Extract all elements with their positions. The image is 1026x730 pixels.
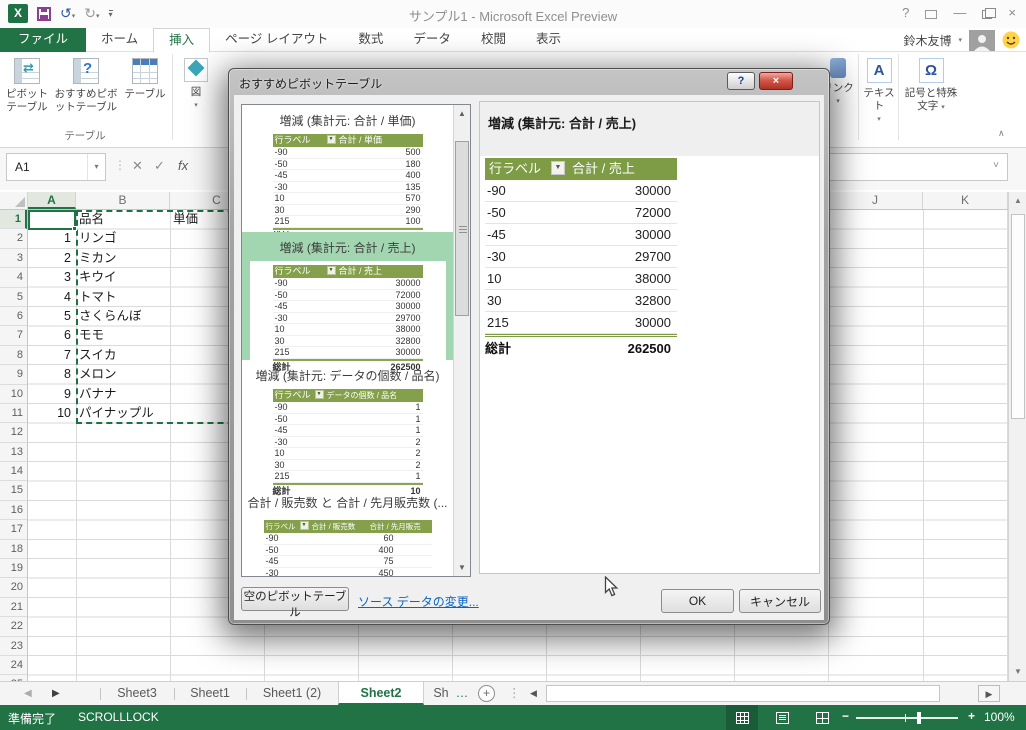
column-header-a[interactable]: A (28, 192, 76, 209)
mini-pivot-row: 102 (273, 448, 423, 460)
row-header[interactable]: 20 (0, 578, 27, 597)
filter-dropdown-icon: ▼ (300, 521, 309, 530)
preview-header-label: 行ラベル (485, 158, 551, 180)
total-value: 262500 (628, 337, 677, 358)
mini-header-value: 合計 / 販売数 (310, 520, 368, 533)
preview-pivot-header: 行ラベル ▼ 合計 / 売上 (485, 158, 677, 180)
row-label: 30 (485, 290, 501, 311)
list-scroll-thumb[interactable] (455, 141, 469, 316)
row-value: 32800 (635, 290, 677, 311)
expand-formula-bar-icon[interactable]: ˅ (993, 160, 999, 171)
row-value: 30000 (395, 347, 422, 358)
text-icon: A (867, 58, 892, 83)
sheet-tab-truncated[interactable]: Sh (428, 682, 454, 705)
list-item-title: 増減 (集計元: 合計 / 単価) (242, 105, 453, 129)
illustrations-icon (184, 58, 208, 82)
row-header[interactable]: 21 (0, 598, 27, 617)
list-item-pivot-1[interactable]: 増減 (集計元: 合計 / 単価) 行ラベル ▼ 合計 / 単価 -90500-… (242, 105, 453, 232)
group-separator (898, 54, 899, 140)
mini-pivot-row: -9060 (264, 533, 432, 545)
list-item-pivot-2-selected[interactable]: 増減 (集計元: 合計 / 売上) 行ラベル ▼ 合計 / 売上 (242, 232, 453, 360)
hscroll-right-icon[interactable]: ▶ (978, 685, 1000, 702)
mini-pivot-row: -45400 (273, 170, 423, 182)
mini-header-label: 行ラベル (273, 265, 325, 278)
mini-pivot-row: 1038000 (273, 324, 423, 336)
name-box-value: A1 (15, 160, 30, 174)
formula-bar-splitter[interactable]: ⋮ (114, 158, 126, 172)
mini-pivot-row: 2151 (273, 471, 423, 483)
row-header[interactable]: 11 (0, 404, 27, 423)
row-header[interactable]: 19 (0, 559, 27, 578)
illustrations-button[interactable]: 図 ▾ (178, 56, 214, 112)
link-icon (830, 58, 846, 78)
mini-header-label: 行ラベル (273, 389, 313, 402)
enter-entry-icon[interactable]: ✓ (154, 158, 165, 174)
feedback-smiley-icon[interactable] (1002, 31, 1020, 49)
pivot-table-icon: ⇄ (14, 58, 40, 84)
pivot-preview-pane: 増減 (集計元: 合計 / 売上) 行ラベル ▼ 合計 / 売上 -903000… (479, 101, 820, 574)
mini-pivot-row: 10570 (273, 193, 423, 205)
text-button[interactable]: A テキスト ▾ (860, 56, 898, 126)
row-header[interactable]: 24 (0, 656, 27, 675)
restore-icon[interactable] (982, 10, 992, 19)
row-value: 29700 (395, 313, 422, 324)
new-sheet-icon[interactable]: + (478, 685, 495, 702)
row-header[interactable]: 6 (0, 307, 27, 326)
recommended-pivot-icon: ? (73, 58, 99, 84)
row-label: -30 (485, 246, 506, 267)
vertical-scrollbar[interactable]: ▲ ▼ (1008, 192, 1026, 681)
table-label: テーブル (124, 88, 165, 100)
list-item-pivot-3[interactable]: 増減 (集計元: データの個数 / 品名) 行ラベル ▼ データの個数 / 品名… (242, 360, 453, 487)
mini-pivot-rows: -901-501-451-3021023022151 (273, 402, 423, 483)
cell-a[interactable]: 9 (28, 385, 76, 404)
mini-pivot-header: 行ラベル ▼ 合計 / 販売数 合計 / 先月販売 (264, 520, 432, 533)
table-group-label: テーブル (0, 128, 170, 143)
row-label: -50 (273, 290, 288, 301)
name-box-dropdown-icon[interactable]: ▾ (87, 154, 105, 180)
mini-pivot-row: -4530000 (273, 301, 423, 313)
row-headers: 1234567891011121314151617181920212223242… (0, 210, 28, 681)
preview-pivot-rows: -9030000-5072000-4530000-302970010380003… (485, 180, 677, 334)
list-item-title: 増減 (集計元: 合計 / 売上) (242, 232, 453, 256)
cancel-entry-icon[interactable]: ✕ (132, 158, 143, 174)
row-value: 60 (308, 533, 396, 544)
account-area: 鈴木友博 ▾ (903, 28, 1020, 52)
column-header-b[interactable]: B (76, 192, 170, 209)
page-layout-icon (776, 712, 789, 724)
row-value: 38000 (395, 324, 422, 335)
title-bar: X ↺▾ ↻▾ ▾ サンプル1 - Microsoft Excel Previe… (0, 0, 1026, 28)
symbols-icon: Ω (919, 58, 944, 83)
recommended-pivot-button[interactable]: ? おすすめピボットテーブル (52, 56, 120, 114)
row-value: 30000 (635, 224, 677, 245)
recommended-pivottables-dialog: おすすめピボットテーブル ? × 増減 (集計元: 合計 / 単価) 行ラベル … (228, 68, 830, 625)
ok-button[interactable]: OK (661, 589, 734, 613)
row-value: 400 (308, 545, 396, 556)
tab-home[interactable]: ホーム (86, 28, 153, 52)
row-header[interactable]: 1 (0, 210, 27, 229)
avatar[interactable] (969, 30, 995, 51)
row-label: -50 (264, 545, 308, 556)
zoom-level[interactable]: 100% (984, 710, 1015, 724)
cell-a[interactable]: 2 (28, 249, 76, 268)
row-label: -50 (273, 159, 288, 170)
mini-pivot-rows: -9030000-5072000-4530000-302970010380003… (273, 278, 423, 359)
row-label: 30 (273, 336, 285, 347)
row-header[interactable]: 5 (0, 288, 27, 307)
mini-pivot-row: 21530000 (273, 347, 423, 359)
preview-pivot-row: -4530000 (485, 224, 677, 246)
row-header[interactable]: 7 (0, 326, 27, 345)
illustrations-label: 図 (191, 86, 202, 98)
row-value: 570 (405, 193, 422, 204)
symbols-label: 記号と特殊文字 (905, 87, 958, 112)
row-label: 30 (273, 460, 285, 471)
active-cell-a1[interactable] (28, 210, 76, 230)
row-label: -45 (273, 170, 288, 181)
dialog-client: 増減 (集計元: 合計 / 単価) 行ラベル ▼ 合計 / 単価 -90500-… (234, 95, 824, 620)
row-header[interactable]: 22 (0, 617, 27, 636)
tab-review[interactable]: 校閲 (466, 28, 521, 52)
row-value: 29700 (635, 246, 677, 267)
row-value: 32800 (395, 336, 422, 347)
recommended-pivot-label: おすすめピボットテーブル (55, 88, 118, 113)
row-label: 215 (273, 347, 290, 358)
sheet-nav-right-icon[interactable]: ▶ (52, 682, 60, 705)
row-label: -30 (273, 182, 288, 193)
mouse-cursor (604, 576, 619, 603)
user-name[interactable]: 鈴木友博 (903, 32, 951, 49)
scroll-lock-status: SCROLLLOCK (78, 710, 159, 724)
cell-a[interactable]: 1 (28, 229, 76, 248)
list-item-title: 合計 / 販売数 と 合計 / 先月販売数 (... (242, 487, 453, 511)
row-label: -90 (485, 180, 506, 201)
row-label: 10 (273, 324, 285, 335)
help-icon[interactable]: ? (902, 5, 909, 20)
column-header-k[interactable]: K (923, 192, 1008, 209)
row-header[interactable]: 4 (0, 268, 27, 287)
row-label: -45 (273, 425, 288, 436)
cell-a[interactable]: 7 (28, 346, 76, 365)
row-label: -90 (273, 402, 288, 413)
mini-pivot-row: -3029700 (273, 313, 423, 325)
dialog-close-icon[interactable]: × (759, 72, 793, 90)
row-label: -50 (485, 202, 506, 223)
text-label: テキスト (863, 87, 894, 112)
mini-header-value2: 合計 / 先月販売 (368, 520, 421, 533)
row-label: -45 (273, 301, 288, 312)
more-sheets-icon[interactable]: … (452, 682, 472, 705)
window-controls: ? — × (902, 5, 1016, 20)
page-layout-view-button[interactable] (766, 705, 798, 730)
row-value: 450 (308, 568, 396, 577)
mini-pivot-header: 行ラベル ▼ 合計 / 売上 (273, 265, 423, 278)
row-value: 2 (415, 460, 422, 471)
mini-header-value: 合計 / 売上 (337, 265, 383, 278)
row-value: 30000 (635, 180, 677, 201)
list-item-pivot-4[interactable]: 合計 / 販売数 と 合計 / 先月販売数 (... 行ラベル ▼ 合計 / 販… (242, 487, 453, 576)
row-value: 2 (415, 437, 422, 448)
illustrations-dropdown-icon: ▾ (178, 99, 214, 112)
row-value: 30000 (395, 301, 422, 312)
scroll-up-icon[interactable]: ▲ (1010, 192, 1026, 209)
row-header[interactable]: 14 (0, 462, 27, 481)
mini-pivot-row: 215100 (273, 216, 423, 228)
row-label: 215 (273, 471, 290, 482)
mini-pivot-row: -9030000 (273, 278, 423, 290)
change-source-data-link[interactable]: ソース データの変更... (358, 593, 479, 610)
sheet-tab-sheet3[interactable]: Sheet3 (101, 682, 173, 705)
tab-formulas[interactable]: 数式 (343, 28, 398, 52)
sheet-tab-sheet1[interactable]: Sheet1 (175, 682, 245, 705)
row-value: 180 (405, 159, 422, 170)
row-label: -90 (273, 278, 288, 289)
window-title: サンプル1 - Microsoft Excel Preview (0, 6, 1026, 25)
zoom-out-icon[interactable]: − (842, 709, 849, 723)
row-label: 215 (485, 312, 509, 333)
ribbon-tab-row: ファイル ホーム 挿入 ページ レイアウト 数式 データ 校閲 表示 鈴木友博 … (0, 28, 1026, 52)
preview-title: 増減 (集計元: 合計 / 売上) (488, 113, 636, 132)
row-label: -30 (273, 437, 288, 448)
select-all-corner[interactable] (0, 192, 28, 209)
fill-handle[interactable] (72, 226, 77, 231)
row-value: 30000 (395, 278, 422, 289)
mini-pivot-row: -501 (273, 414, 423, 426)
dialog-title: おすすめピボットテーブル (239, 75, 382, 92)
row-label: -45 (485, 224, 506, 245)
excel-window: X ↺▾ ↻▾ ▾ サンプル1 - Microsoft Excel Previe… (0, 0, 1026, 730)
tab-page-layout[interactable]: ページ レイアウト (210, 28, 343, 52)
page-break-icon (816, 712, 829, 724)
preview-pivot-row: 1038000 (485, 268, 677, 290)
row-value: 2 (415, 448, 422, 459)
status-bar: 準備完了 SCROLLLOCK − + 100% (0, 705, 1026, 730)
cell-a[interactable]: 8 (28, 365, 76, 384)
mini-pivot-row: -50400 (264, 545, 432, 557)
pivot-suggestion-list: 増減 (集計元: 合計 / 単価) 行ラベル ▼ 合計 / 単価 -90500-… (241, 104, 471, 577)
sheet-tab-bar: ◀ ▶ Sheet3 Sheet1 Sheet1 (2) Sheet2 Sh …… (0, 681, 1026, 705)
mini-pivot-row: -50180 (273, 159, 423, 171)
scroll-down-icon[interactable]: ▼ (1010, 663, 1026, 680)
preview-pivot-row: -3029700 (485, 246, 677, 268)
preview-pivot-table: 行ラベル ▼ 合計 / 売上 -9030000-5072000-4530000-… (485, 158, 677, 358)
mini-pivot-row: -901 (273, 402, 423, 414)
close-icon[interactable]: × (1008, 5, 1016, 20)
row-value: 1 (415, 414, 422, 425)
group-separator (858, 54, 859, 140)
mini-pivot-row: -30450 (264, 568, 432, 577)
sheet-tab-sheet1-2[interactable]: Sheet1 (2) (247, 682, 337, 705)
row-label: 30 (273, 205, 285, 216)
row-header[interactable]: 8 (0, 346, 27, 365)
row-value: 75 (308, 556, 396, 567)
preview-pivot-row: 3032800 (485, 290, 677, 312)
row-header[interactable]: 15 (0, 481, 27, 500)
row-value: 1 (415, 425, 422, 436)
page-break-view-button[interactable] (806, 705, 838, 730)
horizontal-scroll-thumb[interactable] (546, 685, 940, 702)
tab-data[interactable]: データ (398, 28, 466, 52)
row-header[interactable]: 13 (0, 443, 27, 462)
pivot-table-label: ピボットテーブル (6, 88, 48, 113)
cell-a[interactable]: 5 (28, 307, 76, 326)
sheet-tab-sheet2-active[interactable]: Sheet2 (338, 682, 424, 705)
row-header[interactable]: 9 (0, 365, 27, 384)
mini-pivot-row: -90500 (273, 147, 423, 159)
cell-a[interactable]: 3 (28, 268, 76, 287)
cell-a[interactable]: 4 (28, 288, 76, 307)
pivot-table-button[interactable]: ⇄ ピボットテーブル (4, 56, 50, 114)
cancel-button[interactable]: キャンセル (739, 589, 821, 613)
row-header[interactable]: 16 (0, 501, 27, 520)
row-header[interactable]: 23 (0, 637, 27, 656)
collapse-ribbon-icon[interactable]: ∧ (998, 128, 1005, 139)
row-value: 72000 (635, 202, 677, 223)
cell-a[interactable]: 6 (28, 326, 76, 345)
list-item-title: 増減 (集計元: データの個数 / 品名) (242, 360, 453, 384)
row-header[interactable]: 2 (0, 229, 27, 248)
preview-pivot-row: -9030000 (485, 180, 677, 202)
row-label: -45 (264, 556, 308, 567)
mini-pivot-row: -302 (273, 437, 423, 449)
row-value: 30000 (635, 312, 677, 333)
row-value: 72000 (395, 290, 422, 301)
zoom-slider-center-tick (905, 714, 906, 722)
text-dropdown-icon: ▾ (860, 113, 898, 126)
table-icon (132, 58, 158, 84)
row-header[interactable]: 12 (0, 423, 27, 442)
tab-file[interactable]: ファイル (0, 28, 86, 52)
total-label: 総計 (485, 337, 511, 358)
ready-status: 準備完了 (8, 710, 56, 727)
list-scroll-down-icon[interactable]: ▼ (454, 559, 470, 576)
mini-pivot-row: -30135 (273, 182, 423, 194)
row-value: 1 (415, 402, 422, 413)
mini-header-label: 行ラベル (264, 520, 298, 533)
mini-header-label: 行ラベル (273, 134, 325, 147)
mini-header-value: 合計 / 単価 (337, 134, 383, 147)
mini-pivot-header: 行ラベル ▼ 合計 / 単価 (273, 134, 423, 147)
preview-header-value: 合計 / 売上 (565, 158, 635, 180)
mini-header-value: データの個数 / 品名 (325, 389, 398, 402)
preview-pivot-total: 総計 262500 (485, 334, 677, 358)
tab-insert[interactable]: 挿入 (153, 28, 210, 53)
column-header-j[interactable]: J (828, 192, 923, 209)
row-value: 38000 (635, 268, 677, 289)
insert-function-icon[interactable]: fx (178, 158, 188, 173)
row-value: 500 (405, 147, 422, 158)
normal-view-button[interactable] (726, 705, 758, 730)
filter-dropdown-icon: ▼ (327, 135, 336, 144)
row-label: 10 (273, 193, 285, 204)
mini-pivot-row: 302 (273, 460, 423, 472)
mini-pivot-row: 30290 (273, 205, 423, 217)
mini-pivot-row: -5072000 (273, 290, 423, 302)
ribbon-display-options-icon[interactable] (925, 10, 937, 19)
cell-a[interactable]: 10 (28, 404, 76, 423)
zoom-in-icon[interactable]: + (968, 709, 975, 723)
row-value: 135 (405, 182, 422, 193)
row-header[interactable]: 17 (0, 520, 27, 539)
hscroll-left-icon[interactable]: ◀ (530, 682, 537, 705)
tabbar-splitter-icon[interactable]: ⋮ (508, 682, 520, 705)
preview-pivot-row: -5072000 (485, 202, 677, 224)
tab-view[interactable]: 表示 (521, 28, 576, 52)
row-header[interactable]: 3 (0, 249, 27, 268)
mini-pivot-header: 行ラベル ▼ データの個数 / 品名 (273, 389, 423, 402)
normal-view-icon (736, 712, 749, 724)
row-value: 290 (405, 205, 422, 216)
group-separator (172, 54, 173, 140)
mini-pivot-row: 3032800 (273, 336, 423, 348)
sheet-nav-left-icon[interactable]: ◀ (24, 682, 32, 705)
mini-pivot-row: -451 (273, 425, 423, 437)
row-value: 100 (405, 216, 422, 227)
row-label: -30 (264, 568, 308, 577)
row-label: -90 (273, 147, 288, 158)
minimize-icon[interactable]: — (953, 5, 966, 20)
dialog-help-icon[interactable]: ? (727, 72, 755, 90)
row-label: 10 (273, 448, 285, 459)
table-button[interactable]: テーブル (122, 56, 168, 101)
mini-pivot-rows: -90500-50180-45400-301351057030290215100 (273, 147, 423, 228)
row-label: 10 (485, 268, 501, 289)
symbols-dropdown-icon: ▾ (941, 104, 945, 111)
mini-pivot-rows: -9060-50400-4575-304501015030280 (264, 533, 432, 576)
user-dropdown-icon[interactable]: ▾ (958, 36, 962, 44)
filter-dropdown-icon[interactable]: ▼ (551, 161, 565, 175)
row-label: 215 (273, 216, 290, 227)
row-label: -50 (273, 414, 288, 425)
row-label: -30 (273, 313, 288, 324)
preview-pivot-row: 21530000 (485, 312, 677, 334)
filter-dropdown-icon: ▼ (327, 266, 336, 275)
symbols-button[interactable]: Ω 記号と特殊文字 ▾ (902, 56, 960, 114)
row-label: -90 (264, 533, 308, 544)
name-box[interactable]: A1 ▾ (6, 153, 106, 181)
filter-dropdown-icon: ▼ (315, 390, 324, 399)
zoom-slider-handle[interactable] (917, 712, 921, 724)
row-header[interactable]: 10 (0, 385, 27, 404)
list-scrollbar[interactable]: ▲ ▼ (453, 105, 470, 576)
row-value: 1 (415, 471, 422, 482)
row-value: 400 (405, 170, 422, 181)
row-header[interactable]: 18 (0, 540, 27, 559)
blank-pivottable-button[interactable]: 空のピボットテーブル (241, 587, 349, 611)
vertical-scroll-thumb[interactable] (1011, 214, 1025, 419)
mini-pivot-row: -4575 (264, 556, 432, 568)
zoom-slider-track[interactable] (856, 717, 958, 719)
list-scroll-up-icon[interactable]: ▲ (454, 105, 470, 122)
